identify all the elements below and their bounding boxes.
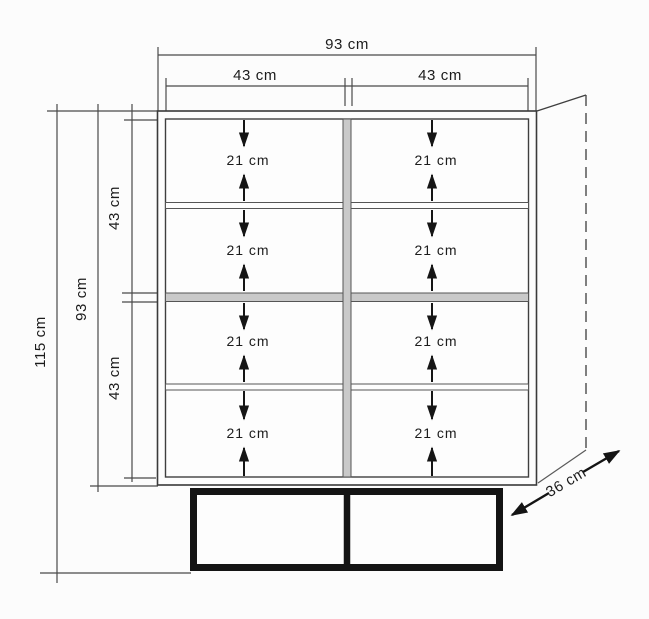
column-width-dimensions: 43 cm 43 cm xyxy=(166,67,528,111)
cabinet-body xyxy=(158,111,537,485)
compartment-height-label: 21 cm xyxy=(414,152,457,168)
dimension-drawing: 93 cm 43 cm 43 cm 115 cm 93 cm 43 cm 43 … xyxy=(0,0,649,619)
middle-shelf-right xyxy=(351,293,529,302)
cabinet-height-label: 93 cm xyxy=(73,277,90,321)
middle-shelf-left xyxy=(166,293,344,302)
depth-arrow-back xyxy=(583,451,619,472)
top-depth-edge xyxy=(537,95,586,111)
compartment-height-label: 21 cm xyxy=(414,425,457,441)
cabinet-diagram-svg: 93 cm 43 cm 43 cm 115 cm 93 cm 43 cm 43 … xyxy=(0,0,649,619)
shelf-lower-right xyxy=(351,384,529,390)
left-column-width-label: 43 cm xyxy=(233,67,277,84)
compartment-height-label: 21 cm xyxy=(414,242,457,258)
compartment-height-label: 21 cm xyxy=(226,333,269,349)
compartment-height-label: 21 cm xyxy=(414,333,457,349)
shelf-upper-right xyxy=(351,203,529,209)
total-height-label: 115 cm xyxy=(32,316,49,368)
overall-width-label: 93 cm xyxy=(325,36,369,53)
compartment-height-label: 21 cm xyxy=(226,152,269,168)
right-column-width-label: 43 cm xyxy=(418,67,462,84)
shelf-upper-left xyxy=(166,203,344,209)
shelf-lower-left xyxy=(166,384,344,390)
plinth-base xyxy=(194,491,500,568)
compartment-height-label: 21 cm xyxy=(226,425,269,441)
lower-section-height-label: 43 cm xyxy=(106,356,123,400)
depth-perspective xyxy=(537,95,586,483)
center-divider xyxy=(343,119,351,477)
top-width-dimensions: 93 cm 43 cm 43 cm xyxy=(158,36,536,111)
overall-width-dimension: 93 cm xyxy=(158,36,536,111)
depth-label: 36 cm xyxy=(543,464,589,501)
depth-arrow-front xyxy=(512,493,549,515)
upper-section-height-label: 43 cm xyxy=(106,186,123,230)
compartment-height-label: 21 cm xyxy=(226,242,269,258)
